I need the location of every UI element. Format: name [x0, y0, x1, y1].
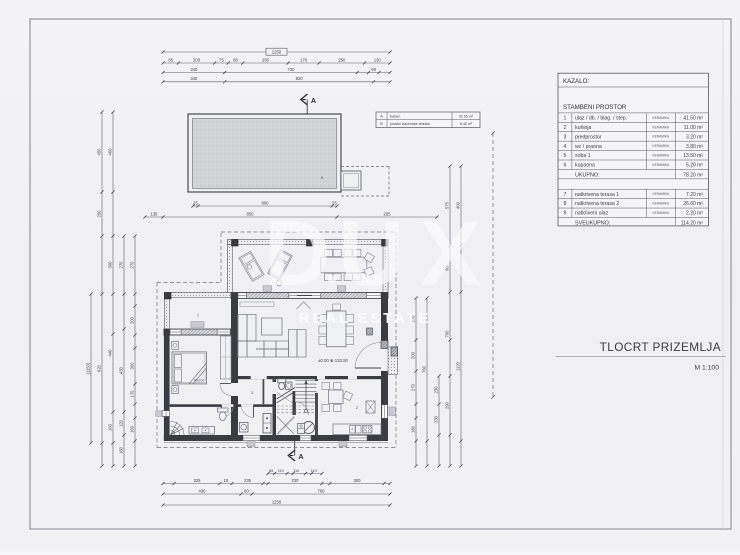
- svg-text:natkrivena terasa 1: natkrivena terasa 1: [575, 192, 619, 198]
- svg-text:A: A: [298, 452, 303, 461]
- svg-text:bazen: bazen: [390, 114, 400, 118]
- svg-text:850: 850: [247, 211, 255, 216]
- svg-text:2: 2: [563, 125, 566, 131]
- svg-text:250: 250: [338, 57, 346, 62]
- svg-text:75: 75: [219, 57, 224, 62]
- svg-text:25: 25: [332, 200, 337, 205]
- svg-text:440: 440: [108, 349, 113, 357]
- svg-text:110: 110: [293, 469, 299, 473]
- svg-text:1250: 1250: [272, 499, 282, 504]
- svg-text:5: 5: [563, 153, 566, 159]
- svg-text:natkriveni ulaz: natkriveni ulaz: [575, 211, 609, 217]
- svg-text:KERAMIKA: KERAMIKA: [653, 211, 670, 215]
- svg-text:290: 290: [445, 401, 450, 409]
- svg-text:5.20 m²: 5.20 m²: [686, 163, 703, 169]
- svg-text:2.20 m²: 2.20 m²: [686, 211, 703, 217]
- svg-text:1250: 1250: [272, 50, 282, 55]
- svg-text:predprostor: predprostor: [575, 134, 602, 140]
- svg-text:KERAMIKA: KERAMIKA: [653, 202, 670, 206]
- svg-text:235: 235: [244, 478, 252, 483]
- svg-text:8: 8: [563, 201, 566, 207]
- svg-text:300: 300: [108, 261, 113, 269]
- svg-text:325: 325: [194, 478, 202, 483]
- svg-text:kupaona: kupaona: [575, 163, 595, 169]
- svg-text:730: 730: [287, 67, 295, 72]
- svg-text:8.40 m²: 8.40 m²: [460, 122, 473, 126]
- svg-text:620: 620: [97, 364, 102, 372]
- svg-text:160: 160: [119, 446, 124, 454]
- svg-text:450: 450: [97, 148, 102, 156]
- svg-text:1: 1: [563, 116, 566, 122]
- svg-text:KERAMIKA: KERAMIKA: [653, 116, 670, 120]
- svg-text:STAMBENI PROSTOR: STAMBENI PROSTOR: [563, 104, 627, 111]
- svg-text:400: 400: [108, 148, 113, 156]
- svg-text:13.50 m²: 13.50 m²: [683, 153, 703, 159]
- svg-text:wc / praona: wc / praona: [575, 144, 602, 150]
- svg-text:90x200: 90x200: [194, 379, 205, 383]
- svg-text:60: 60: [371, 67, 376, 72]
- svg-text:80: 80: [233, 57, 238, 62]
- svg-text:41.50 m²: 41.50 m²: [683, 116, 703, 122]
- svg-text:820: 820: [296, 76, 304, 81]
- svg-text:120: 120: [119, 419, 124, 427]
- svg-text:340: 340: [190, 67, 198, 72]
- svg-text:natkrivena terasa 2: natkrivena terasa 2: [575, 201, 619, 207]
- svg-text:78.20 m²: 78.20 m²: [683, 172, 703, 178]
- svg-text:110: 110: [278, 469, 284, 473]
- svg-text:KERAMIKA: KERAMIKA: [653, 135, 670, 139]
- svg-text:A: A: [311, 96, 316, 105]
- svg-text:135: 135: [151, 211, 159, 216]
- svg-text:SVEUKUPNO:: SVEUKUPNO:: [575, 220, 610, 226]
- svg-text:4: 4: [563, 144, 566, 150]
- svg-text:180: 180: [411, 425, 416, 433]
- svg-text:230: 230: [292, 478, 300, 483]
- svg-text:85: 85: [269, 469, 273, 473]
- svg-text:3: 3: [563, 134, 566, 140]
- svg-text:UKUPNO:: UKUPNO:: [575, 172, 600, 178]
- svg-text:200: 200: [193, 57, 201, 62]
- svg-text:270: 270: [130, 261, 135, 269]
- svg-text:160: 160: [108, 423, 113, 431]
- svg-text:760: 760: [318, 488, 326, 493]
- svg-text:7.20 m²: 7.20 m²: [686, 192, 703, 198]
- svg-text:6: 6: [563, 163, 566, 169]
- svg-text:11.00 m²: 11.00 m²: [684, 125, 704, 131]
- svg-text:soba 1: soba 1: [575, 153, 591, 159]
- svg-text:160: 160: [130, 425, 135, 433]
- svg-text:270: 270: [119, 261, 124, 269]
- svg-text:114.20 m²: 114.20 m²: [681, 220, 703, 226]
- svg-text:3.20 m²: 3.20 m²: [686, 134, 703, 140]
- svg-text:200: 200: [411, 351, 416, 359]
- svg-text:B: B: [380, 122, 383, 126]
- svg-text:430: 430: [119, 366, 124, 374]
- svg-text:250: 250: [262, 57, 270, 62]
- svg-text:130: 130: [374, 57, 382, 62]
- svg-text:230: 230: [434, 415, 439, 423]
- svg-text:60: 60: [244, 488, 249, 493]
- svg-text:170: 170: [300, 57, 308, 62]
- svg-text:110: 110: [311, 469, 317, 473]
- svg-text:9: 9: [563, 211, 566, 217]
- svg-text:26.60 m²: 26.60 m²: [683, 201, 703, 207]
- svg-text:300: 300: [354, 478, 362, 483]
- svg-text:D: D: [264, 203, 330, 305]
- svg-text:170: 170: [130, 390, 135, 398]
- svg-text:A: A: [380, 114, 383, 118]
- svg-text:(1150): (1150): [86, 362, 91, 374]
- svg-text:kuhinja: kuhinja: [575, 125, 592, 131]
- svg-text:U: U: [338, 203, 404, 305]
- svg-text:25: 25: [193, 200, 198, 205]
- svg-text:REAL ESTATE: REAL ESTATE: [299, 310, 431, 327]
- svg-text:KERAMIKA: KERAMIKA: [653, 144, 670, 148]
- svg-text:M 1:100: M 1:100: [694, 365, 719, 372]
- svg-text:3.80 m²: 3.80 m²: [686, 144, 703, 150]
- svg-text:430: 430: [199, 488, 207, 493]
- svg-text:1120: 1120: [456, 361, 461, 371]
- svg-text:KAZALO:: KAZALO:: [563, 78, 589, 85]
- svg-text:7: 7: [563, 192, 566, 198]
- svg-text:85: 85: [168, 57, 173, 62]
- svg-text:prostor bazenske tehnike: prostor bazenske tehnike: [390, 122, 430, 126]
- svg-text:200: 200: [130, 316, 135, 324]
- svg-text:230: 230: [434, 386, 439, 394]
- svg-text:±0.00 ⊕ 133.50: ±0.00 ⊕ 133.50: [318, 358, 348, 363]
- svg-text:340: 340: [190, 76, 198, 81]
- svg-text:TLOCRT PRIZEMLJA: TLOCRT PRIZEMLJA: [600, 340, 721, 354]
- svg-text:ulaz / db. / blag. / step.: ulaz / db. / blag. / step.: [575, 116, 627, 122]
- svg-text:KERAMIKA: KERAMIKA: [653, 125, 670, 129]
- svg-text:700: 700: [445, 330, 450, 338]
- svg-text:KERAMIKA: KERAMIKA: [653, 154, 670, 158]
- svg-text:250: 250: [97, 210, 102, 218]
- svg-text:15: 15: [224, 478, 229, 483]
- svg-text:KERAMIKA: KERAMIKA: [653, 163, 670, 167]
- svg-text:A: A: [321, 175, 324, 180]
- svg-text:300: 300: [130, 362, 135, 370]
- svg-text:KERAMIKA: KERAMIKA: [653, 192, 670, 196]
- svg-text:32.05 m²: 32.05 m²: [459, 114, 474, 118]
- svg-text:X: X: [420, 203, 481, 305]
- svg-text:760: 760: [422, 365, 427, 373]
- svg-text:270: 270: [411, 383, 416, 391]
